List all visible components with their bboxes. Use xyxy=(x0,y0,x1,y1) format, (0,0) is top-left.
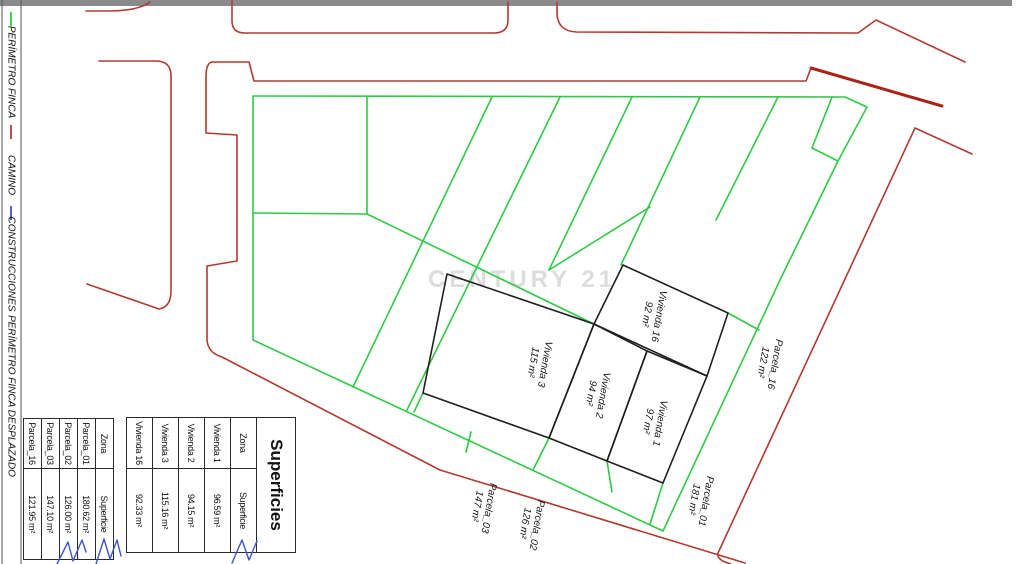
ink-annotations xyxy=(0,0,1024,564)
site-plan-drawing: CENTURY 21 xyxy=(0,0,1024,564)
blue-ink-scribble xyxy=(96,539,121,564)
blue-ink-scribble xyxy=(57,540,86,564)
blue-ink-scribble xyxy=(232,540,257,563)
